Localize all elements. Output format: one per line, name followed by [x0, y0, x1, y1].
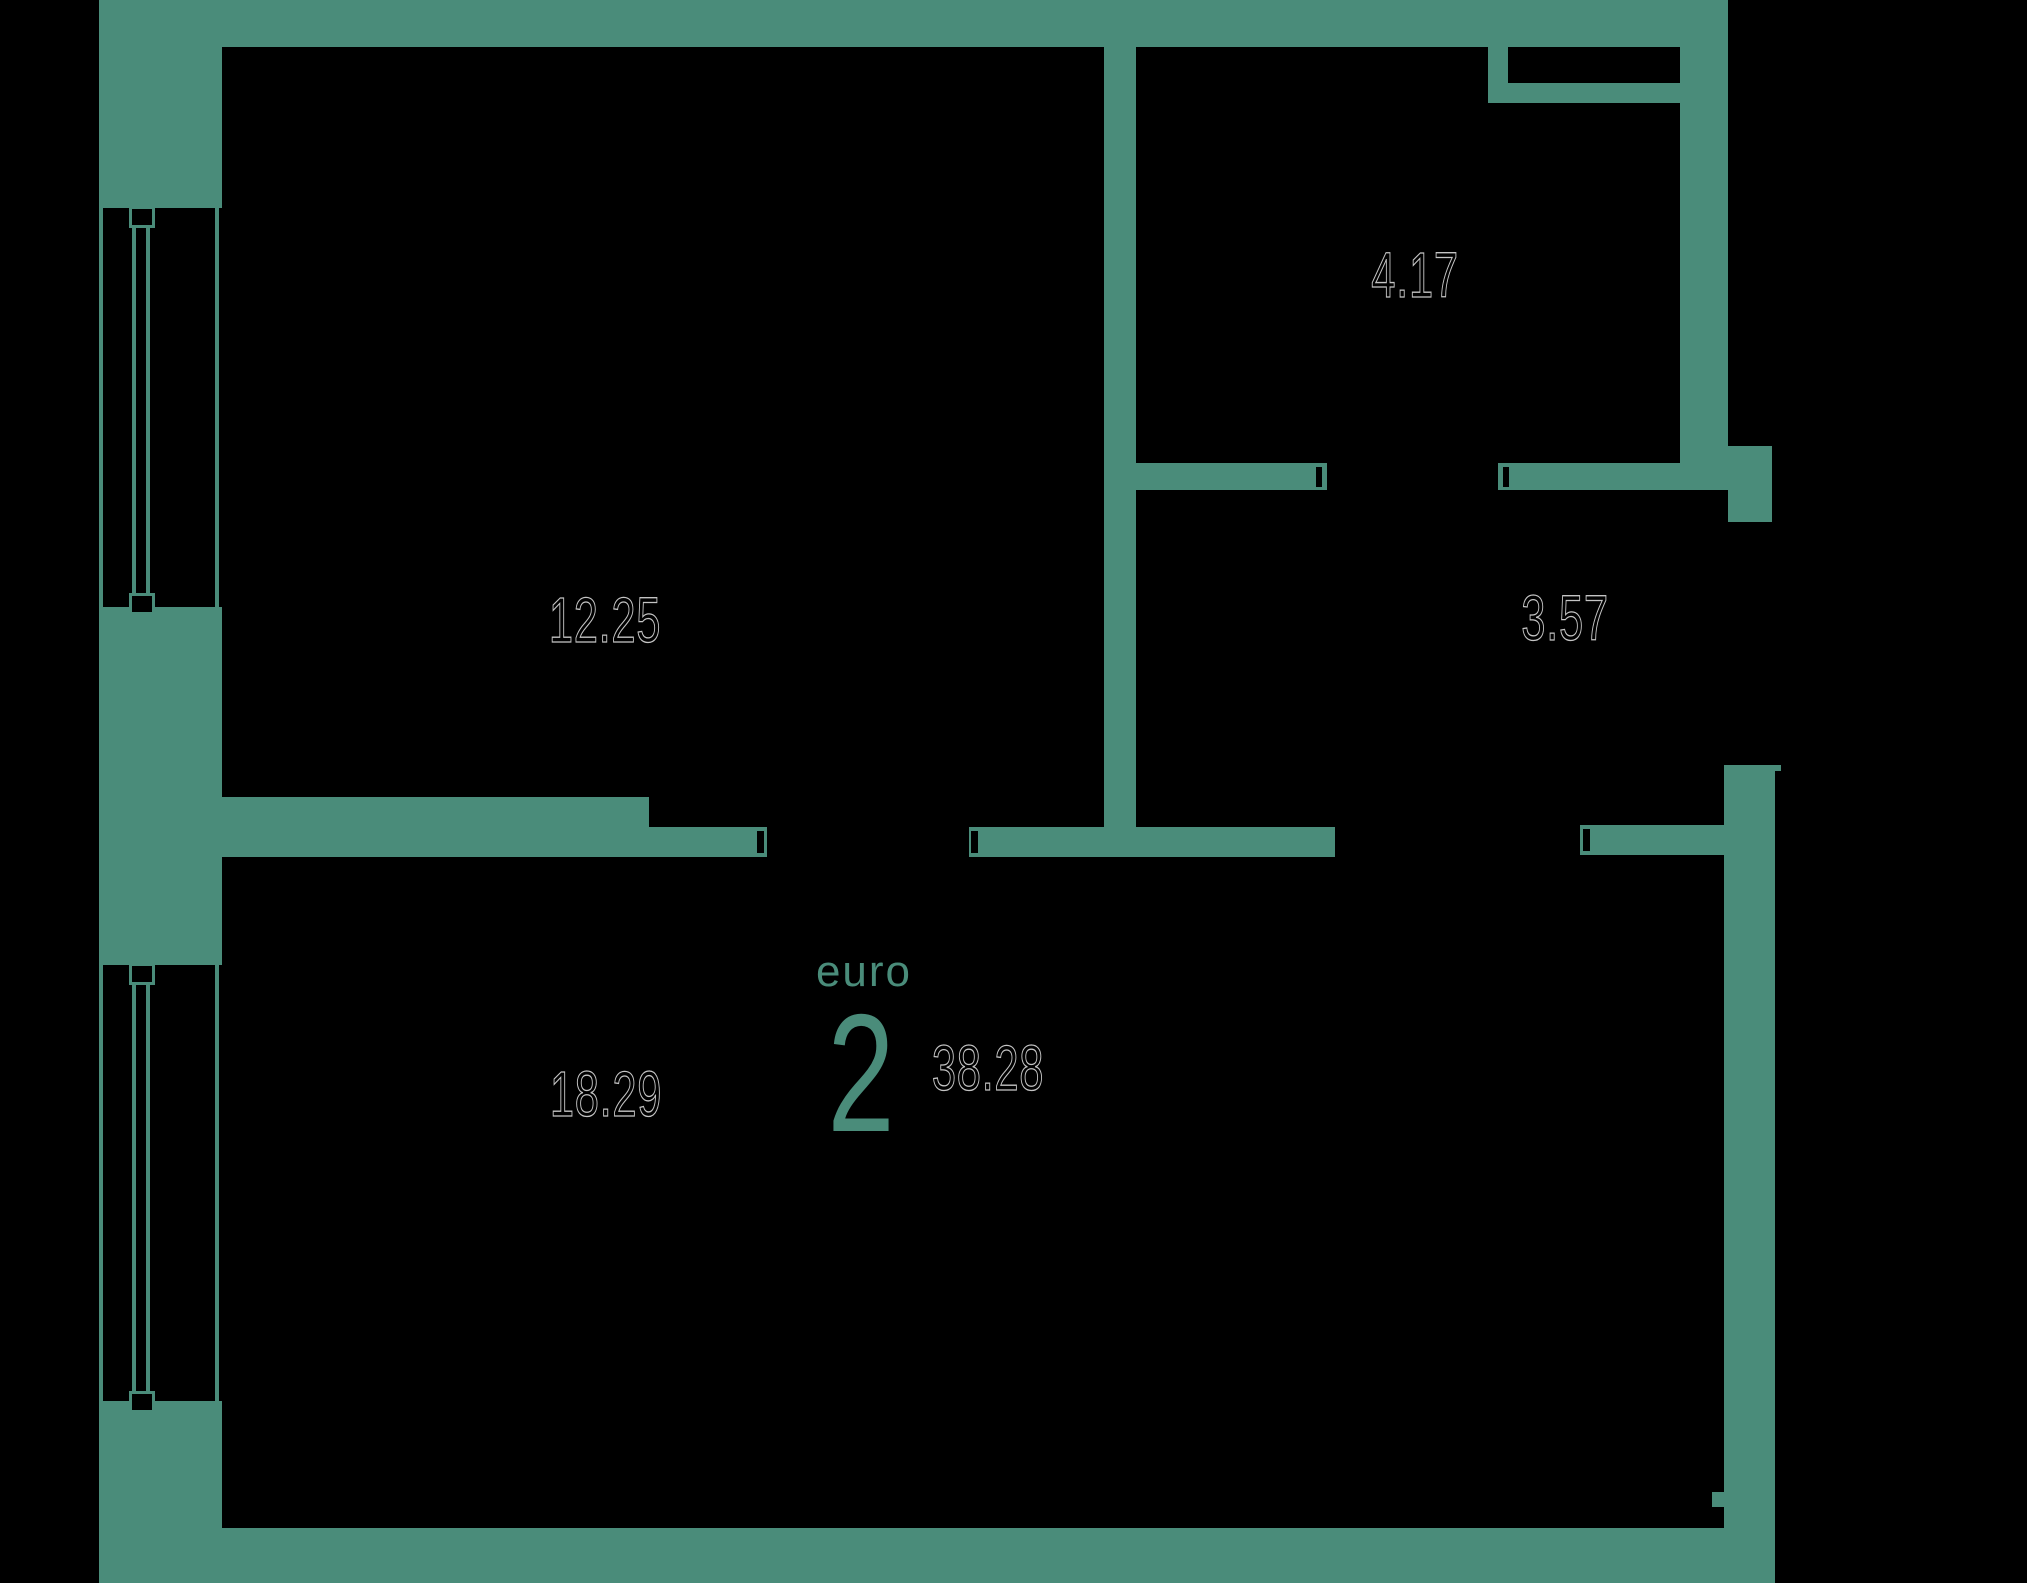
window-1-glass-line-b — [146, 226, 150, 595]
room-area-label-18-29: 18.29 — [550, 1062, 662, 1126]
wall-top-left-block — [99, 0, 222, 208]
window-1-sill-bottom — [129, 593, 155, 615]
door-jamb-slot-living-left — [757, 831, 764, 853]
wall-exterior-top — [99, 0, 1728, 47]
wall-mid-thin-left — [649, 827, 767, 857]
window-2-inner-line — [215, 965, 219, 1401]
window-2-glass-line-b — [146, 983, 150, 1393]
wall-exterior-bottom — [99, 1528, 1775, 1583]
wall-right-lower-tab — [1712, 1492, 1724, 1507]
window-1-outer-line — [99, 208, 103, 607]
room-area-label-12-25: 12.25 — [549, 588, 661, 652]
window-2-sill-top — [129, 963, 155, 985]
door-jamb-slot-bath-right — [1503, 467, 1509, 487]
floor-plan: 12.25 4.17 3.57 18.29 euro 2 38.28 — [0, 0, 2027, 1583]
wall-central-vertical — [1104, 47, 1136, 857]
wall-bath-bottom-right — [1498, 463, 1684, 490]
room-area-label-3-57: 3.57 — [1521, 586, 1608, 650]
window-2-outer-line — [99, 965, 103, 1401]
wall-mid-thin-center — [969, 827, 1335, 857]
wall-mid-thick — [222, 797, 649, 857]
wall-bath-bottom-left — [1104, 463, 1327, 490]
vent-niche-sill — [1488, 83, 1680, 103]
window-1-glass-line-a — [132, 226, 136, 595]
window-1-sill-top — [129, 206, 155, 228]
wall-right-bump — [1728, 446, 1772, 522]
room-area-label-4-17: 4.17 — [1371, 243, 1458, 307]
door-jamb-slot-living-right — [971, 831, 978, 853]
wall-right-lower — [1724, 770, 1775, 1577]
door-jamb-slot-bath-left — [1316, 467, 1322, 487]
wall-hall-bottom — [1580, 825, 1724, 855]
window-2-glass-line-a — [132, 983, 136, 1393]
window-2-sill-bottom — [129, 1391, 155, 1413]
wall-right-upper — [1680, 0, 1728, 490]
door-jamb-slot-hall — [1583, 829, 1590, 851]
unit-total-area: 38.28 — [932, 1036, 1044, 1100]
wall-left-middle-block — [99, 607, 222, 965]
unit-type-number: 2 — [827, 989, 894, 1157]
window-1-inner-line — [215, 208, 219, 607]
